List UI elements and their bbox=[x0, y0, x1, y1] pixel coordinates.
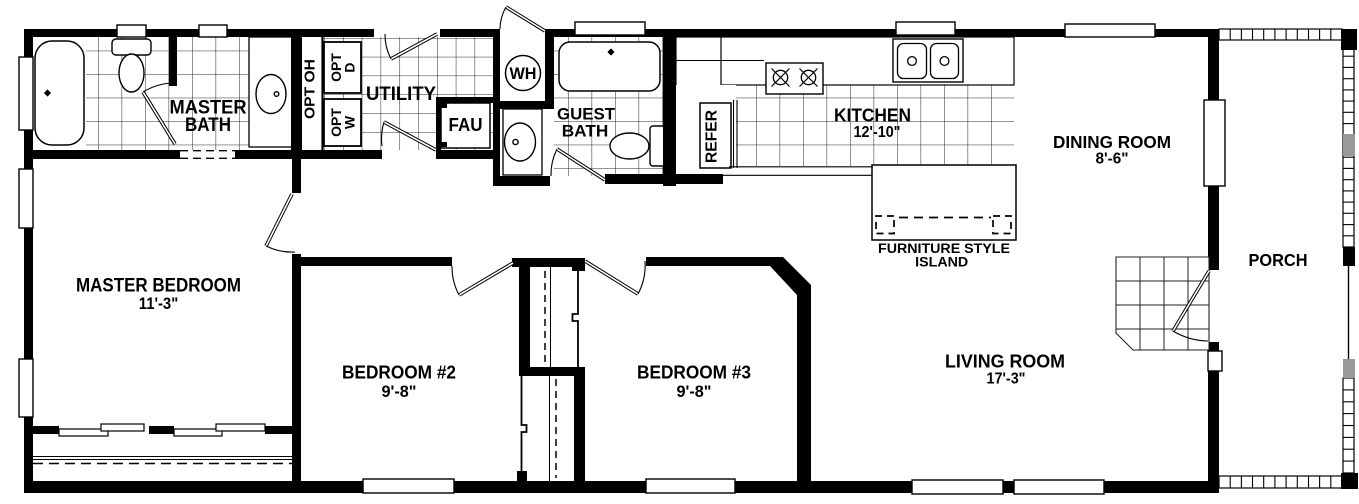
svg-text:DINING ROOM: DINING ROOM bbox=[1053, 132, 1171, 152]
svg-text:GUEST: GUEST bbox=[557, 106, 615, 124]
svg-text:D: D bbox=[342, 62, 358, 72]
svg-text:8'-6": 8'-6" bbox=[1096, 151, 1129, 168]
svg-text:KITCHEN: KITCHEN bbox=[834, 105, 911, 126]
svg-text:17'-3": 17'-3" bbox=[987, 371, 1026, 388]
svg-text:9'-8": 9'-8" bbox=[677, 383, 712, 401]
svg-text:BATH: BATH bbox=[562, 123, 609, 141]
svg-text:WH: WH bbox=[510, 65, 537, 83]
svg-text:BATH: BATH bbox=[185, 114, 231, 136]
svg-text:BEDROOM #2: BEDROOM #2 bbox=[342, 362, 456, 383]
svg-text:PORCH: PORCH bbox=[1249, 250, 1308, 270]
svg-text:12'-10": 12'-10" bbox=[854, 124, 901, 141]
svg-text:FAU: FAU bbox=[449, 114, 483, 135]
svg-text:W: W bbox=[342, 115, 358, 129]
svg-text:BEDROOM #3: BEDROOM #3 bbox=[637, 362, 751, 383]
svg-text:LIVING ROOM: LIVING ROOM bbox=[945, 351, 1065, 372]
svg-text:11'-3": 11'-3" bbox=[139, 294, 179, 313]
svg-text:OPT OH: OPT OH bbox=[302, 59, 319, 119]
svg-text:REFER: REFER bbox=[704, 110, 721, 163]
svg-text:9'-8": 9'-8" bbox=[382, 383, 417, 401]
svg-text:UTILITY: UTILITY bbox=[366, 83, 436, 105]
svg-text:ISLAND: ISLAND bbox=[915, 255, 968, 270]
